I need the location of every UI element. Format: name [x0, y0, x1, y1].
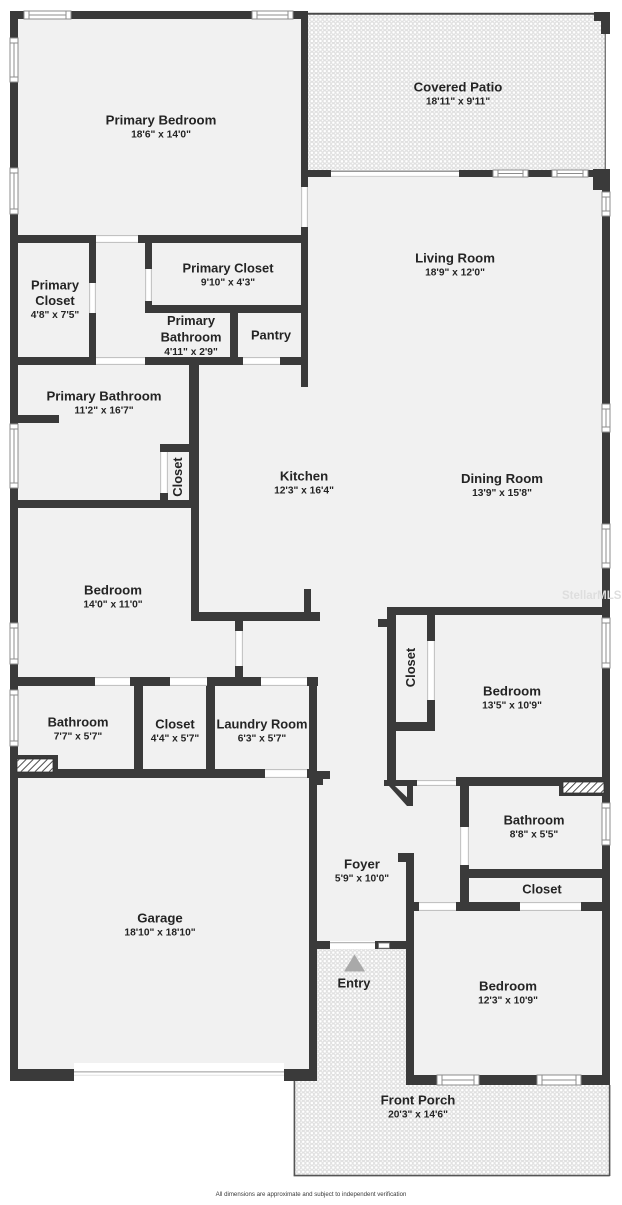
- svg-text:Closet: Closet: [155, 717, 195, 732]
- svg-text:Bedroom: Bedroom: [84, 583, 142, 598]
- svg-text:18'6" x 14'0": 18'6" x 14'0": [131, 129, 191, 140]
- svg-text:Closet: Closet: [170, 457, 185, 497]
- svg-text:9'10" x 4'3": 9'10" x 4'3": [201, 277, 255, 288]
- svg-text:Front Porch: Front Porch: [381, 1093, 456, 1108]
- svg-text:13'9" x 15'8": 13'9" x 15'8": [472, 488, 532, 499]
- svg-text:14'0" x 11'0": 14'0" x 11'0": [83, 599, 142, 610]
- svg-text:18'10" x 18'10": 18'10" x 18'10": [124, 927, 195, 938]
- svg-text:Bedroom: Bedroom: [483, 684, 541, 699]
- svg-text:Primary Closet: Primary Closet: [183, 261, 275, 276]
- svg-text:Closet: Closet: [403, 647, 418, 687]
- svg-text:Bedroom: Bedroom: [479, 979, 537, 994]
- svg-text:12'3" x 16'4": 12'3" x 16'4": [274, 485, 334, 496]
- svg-text:Laundry Room: Laundry Room: [217, 717, 308, 732]
- svg-text:All dimensions are approximate: All dimensions are approximate and subje…: [216, 1191, 407, 1198]
- svg-text:11'2" x 16'7": 11'2" x 16'7": [74, 405, 133, 416]
- svg-text:8'8" x 5'5": 8'8" x 5'5": [510, 829, 559, 840]
- svg-text:Bathroom: Bathroom: [161, 329, 222, 344]
- svg-text:Foyer: Foyer: [344, 857, 380, 872]
- svg-text:18'9" x 12'0": 18'9" x 12'0": [425, 267, 485, 278]
- svg-text:4'8" x 7'5": 4'8" x 7'5": [31, 310, 80, 321]
- svg-text:Kitchen: Kitchen: [280, 469, 328, 484]
- svg-text:20'3" x 14'6": 20'3" x 14'6": [388, 1109, 448, 1120]
- svg-text:Primary: Primary: [31, 277, 80, 292]
- svg-text:5'9" x 10'0": 5'9" x 10'0": [335, 873, 389, 884]
- svg-text:4'11" x 2'9": 4'11" x 2'9": [164, 347, 218, 358]
- svg-text:Primary: Primary: [167, 313, 216, 328]
- svg-text:13'5" x 10'9": 13'5" x 10'9": [482, 700, 542, 711]
- svg-text:7'7" x 5'7": 7'7" x 5'7": [54, 731, 103, 742]
- svg-text:StellarMLS: StellarMLS: [562, 590, 622, 602]
- svg-text:Bathroom: Bathroom: [504, 813, 565, 828]
- svg-text:12'3" x 10'9": 12'3" x 10'9": [478, 995, 538, 1006]
- svg-text:Closet: Closet: [522, 882, 562, 897]
- svg-text:Primary Bathroom: Primary Bathroom: [46, 389, 161, 404]
- svg-text:Closet: Closet: [35, 293, 75, 308]
- svg-text:Dining Room: Dining Room: [461, 471, 543, 486]
- svg-text:Primary Bedroom: Primary Bedroom: [106, 113, 217, 128]
- svg-text:6'3" x 5'7": 6'3" x 5'7": [238, 733, 287, 744]
- svg-text:18'11" x 9'11": 18'11" x 9'11": [426, 96, 491, 107]
- svg-text:Garage: Garage: [137, 911, 182, 926]
- svg-text:4'4" x 5'7": 4'4" x 5'7": [151, 733, 200, 744]
- svg-text:Pantry: Pantry: [251, 328, 292, 343]
- svg-text:Living Room: Living Room: [415, 251, 495, 266]
- svg-text:Covered Patio: Covered Patio: [414, 80, 503, 95]
- svg-text:Entry: Entry: [338, 976, 372, 991]
- svg-text:Bathroom: Bathroom: [48, 715, 109, 730]
